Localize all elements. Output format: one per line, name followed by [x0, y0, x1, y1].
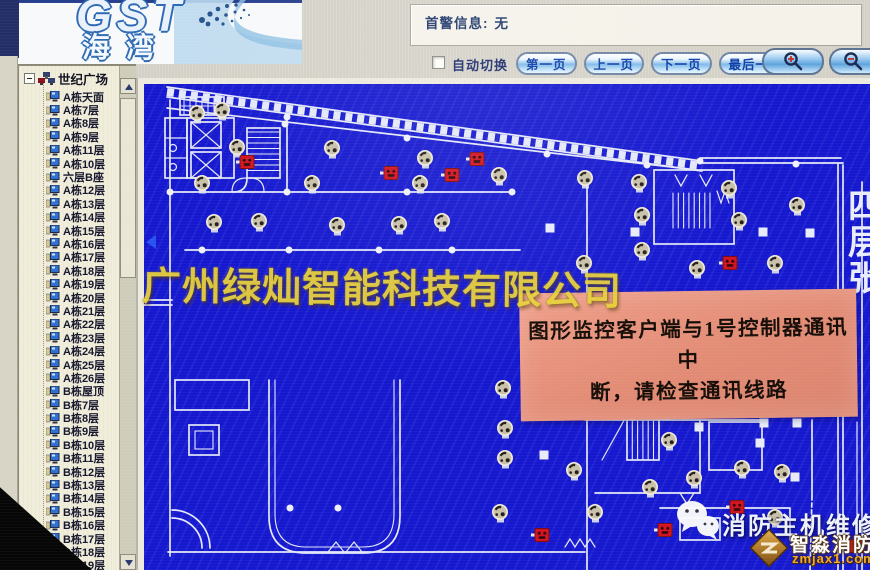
smoke-detector-icon[interactable] [305, 176, 319, 194]
alarm-device-icon[interactable] [654, 524, 672, 537]
first-alarm-label: 首警信息: [425, 16, 489, 31]
smoke-detector-icon[interactable] [498, 451, 512, 469]
floor-list: A栋天面 A栋7层 A栋8层 A栋9层 [19, 90, 119, 570]
first-alarm-panel: 首警信息:无 [410, 4, 862, 46]
first-alarm-value: 无 [495, 16, 510, 31]
smoke-detector-icon[interactable] [392, 217, 406, 235]
smoke-detector-icon[interactable] [413, 176, 427, 194]
alarm-device-icon[interactable] [719, 257, 737, 270]
wechat-icon [672, 496, 722, 546]
smoke-detector-icon[interactable] [578, 171, 592, 189]
floor-plan-icon [46, 145, 60, 156]
floor-plan-icon [46, 265, 60, 276]
smoke-detector-icon[interactable] [735, 461, 749, 479]
floor-plan-icon [46, 185, 60, 196]
smoke-detector-icon[interactable] [207, 215, 221, 233]
pan-left-arrow-icon[interactable] [146, 235, 156, 249]
floor-plan-icon [46, 359, 60, 370]
tree-root-node[interactable]: 世纪广场 [24, 69, 108, 88]
floor-plan-icon [46, 346, 60, 357]
page-button[interactable]: 第一页 [516, 52, 577, 75]
alert-message: 图形监控客户端与1号控制器通讯中 断，请检查通讯线路 [519, 313, 857, 411]
smoke-detector-icon[interactable] [418, 151, 432, 169]
svg-text:四: 四 [848, 188, 870, 226]
scroll-up-arrow-icon[interactable] [120, 78, 136, 94]
floor-plan-icon [46, 131, 60, 142]
first-alarm-info: 首警信息:无 [425, 12, 509, 32]
floor-plan-icon [46, 225, 60, 236]
page-buttons: 第一页 上一页 下一页 最后一页 [516, 52, 793, 75]
page-button[interactable]: 下一页 [651, 52, 712, 75]
smoke-detector-icon[interactable] [790, 198, 804, 216]
smoke-detector-icon[interactable] [775, 465, 789, 483]
smoke-detector-icon[interactable] [325, 141, 339, 159]
floor-plan-icon [46, 158, 60, 169]
scroll-down-arrow-icon[interactable] [120, 554, 136, 570]
floor-plan-icon [46, 466, 60, 477]
smoke-detector-icon[interactable] [768, 256, 782, 274]
tree-scrollbar[interactable] [119, 66, 136, 570]
scrollbar-thumb[interactable] [120, 98, 136, 278]
window-corner [0, 0, 19, 58]
smoke-detector-icon[interactable] [435, 214, 449, 232]
floor-plan-icon [46, 319, 60, 330]
floor-plan-icon [46, 252, 60, 263]
magnifier-plus-icon [780, 51, 806, 72]
smoke-detector-icon[interactable] [496, 381, 510, 399]
alert-message-line1: 图形监控客户端与1号控制器通讯中 [519, 313, 857, 380]
floor-plan-icon [46, 332, 60, 343]
page-button[interactable]: 上一页 [584, 52, 645, 75]
zoom-in-button[interactable] [762, 48, 824, 75]
alarm-device-icon[interactable] [466, 153, 484, 166]
smoke-detector-icon[interactable] [493, 505, 507, 523]
floor-plan-icon [46, 238, 60, 249]
floor-plan-icon [46, 212, 60, 223]
company-watermark: 广州绿灿智能科技有限公司 [142, 255, 623, 316]
smoke-detector-icon[interactable] [632, 175, 646, 193]
floor-plan-icon [46, 305, 60, 316]
floor-plan-icon [46, 506, 60, 517]
smoke-detector-icon[interactable] [690, 261, 704, 279]
collapse-icon[interactable] [24, 73, 35, 84]
floor-plan-icon [46, 172, 60, 183]
smoke-detector-icon[interactable] [230, 140, 244, 158]
building-tree-panel: 世纪广场 A栋天面 A栋7层 A栋8层 [18, 64, 136, 570]
smoke-detector-icon[interactable] [643, 480, 657, 498]
floor-plan-icon [46, 386, 60, 397]
smoke-detector-icon[interactable] [498, 421, 512, 439]
floor-plan-icon [46, 439, 60, 450]
svg-text:层: 层 [848, 224, 870, 262]
floor-plan-icon [46, 520, 60, 531]
smoke-detector-icon[interactable] [635, 243, 649, 261]
floor-plan-icon [46, 453, 60, 464]
alarm-device-icon[interactable] [441, 169, 459, 182]
smoke-detector-icon[interactable] [492, 168, 506, 186]
floor-plan-icon [46, 413, 60, 424]
zoom-buttons [762, 48, 870, 75]
smoke-detector-icon[interactable] [567, 463, 581, 481]
smoke-detector-icon[interactable] [252, 214, 266, 232]
smoke-detector-icon[interactable] [662, 433, 676, 451]
floor-plan-icon [46, 372, 60, 383]
smoke-detector-icon[interactable] [195, 176, 209, 194]
auto-switch-checkbox[interactable] [432, 56, 445, 69]
site-icon [38, 72, 55, 86]
toolbar: 自动切换 第一页 上一页 下一页 最后一页 [410, 50, 870, 78]
floor-plan-icon [46, 105, 60, 116]
alarm-device-icon[interactable] [531, 529, 549, 542]
floor-plan-icon [46, 292, 60, 303]
floor-plan-icon [46, 198, 60, 209]
smoke-detector-icon[interactable] [687, 471, 701, 489]
floor-plan-icon [46, 493, 60, 504]
smoke-detector-icon[interactable] [330, 218, 344, 236]
smoke-detector-icon[interactable] [190, 106, 204, 124]
smoke-detector-icon[interactable] [588, 505, 602, 523]
floor-plan-icon [46, 279, 60, 290]
floor-plan-icon [46, 118, 60, 129]
alert-message-line2: 断，请检查通讯线路 [520, 375, 857, 411]
auto-switch-label: 自动切换 [452, 55, 508, 74]
brand-name-cn: 海湾 [82, 26, 170, 64]
floor-plan-icon [46, 480, 60, 491]
fire-monitoring-app: GST 海湾 首警信息:无 自动切换 第一页 上一页 下一页 最 [0, 0, 870, 570]
floor-plan-icon [46, 399, 60, 410]
cad-edge-label: 四层张 [848, 188, 870, 298]
floor-plan-icon [46, 426, 60, 437]
brand-logo: GST 海湾 [0, 0, 302, 64]
smoke-detector-icon[interactable] [635, 208, 649, 226]
floor-plan-icon [46, 91, 60, 102]
zhimiao-domain-text: zmjax1.com [792, 551, 870, 566]
zhimiao-logo-icon [748, 527, 790, 569]
tree-root-label: 世纪广场 [58, 69, 108, 88]
zoom-out-button[interactable] [829, 48, 870, 75]
magnifier-minus-icon [840, 51, 866, 72]
alarm-device-icon[interactable] [380, 167, 398, 180]
logo-dots-icon [196, 0, 268, 40]
